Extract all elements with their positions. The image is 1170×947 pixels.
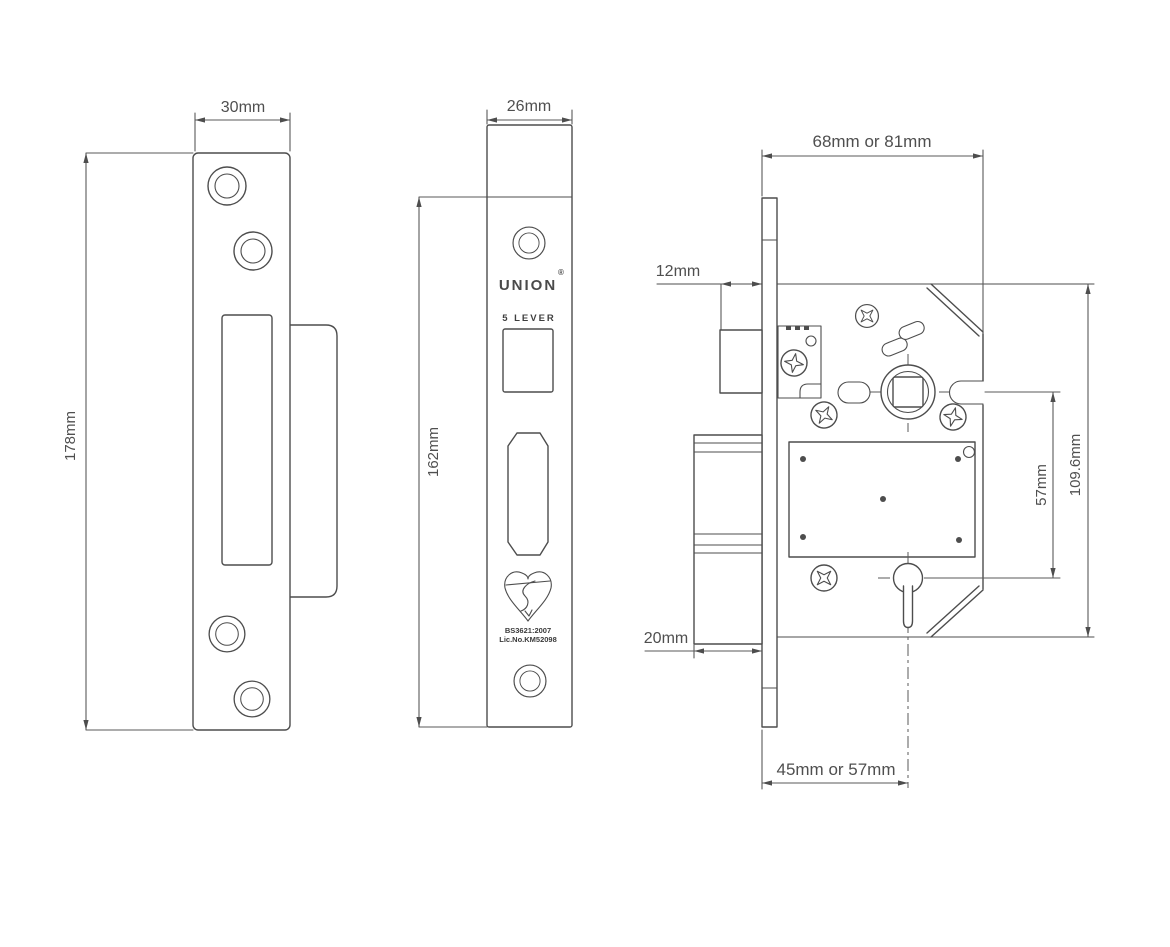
case-depth-label: 68mm or 81mm bbox=[812, 132, 931, 151]
lever-pack-cover bbox=[789, 442, 975, 557]
strike-plate-view: 30mm 178mm bbox=[62, 99, 337, 730]
latch-projection-label: 12mm bbox=[656, 263, 700, 280]
phillips-screw-icon bbox=[851, 300, 883, 332]
forend-width-label: 26mm bbox=[507, 98, 551, 115]
latch-projection-dimension: 12mm bbox=[656, 263, 762, 332]
keyhole bbox=[878, 552, 1060, 788]
oval-slot bbox=[838, 382, 870, 403]
edge-notch bbox=[950, 381, 984, 404]
licence-text: Lic.No.KM52098 bbox=[499, 635, 557, 644]
lock-case-view: 68mm or 81mm 12mm 20mm bbox=[644, 132, 1094, 789]
technical-drawing-page: 30mm 178mm 26mm bbox=[0, 0, 1170, 947]
forend-view: 26mm 162mm UNION ® 5 LEVER BS3621:2007 bbox=[416, 98, 572, 727]
phillips-screw-icon bbox=[937, 401, 969, 433]
latch-mechanism bbox=[778, 326, 821, 398]
top-chamfer bbox=[927, 284, 983, 336]
case-height-label: 109.6mm bbox=[1067, 434, 1084, 497]
latch-bolt bbox=[720, 330, 762, 393]
lever-count-text: 5 LEVER bbox=[502, 313, 556, 324]
lock-technical-drawing: 30mm 178mm 26mm bbox=[0, 0, 1170, 947]
bolt-projection-label: 20mm bbox=[644, 630, 688, 647]
brand-logo-text: UNION bbox=[499, 277, 557, 294]
strike-width-label: 30mm bbox=[221, 99, 265, 116]
standard-text: BS3621:2007 bbox=[505, 626, 551, 635]
centres-label: 57mm bbox=[1033, 464, 1050, 506]
phillips-screw-icon bbox=[806, 397, 842, 433]
keep-box bbox=[290, 325, 337, 597]
phillips-screw-icon bbox=[779, 348, 809, 378]
phillips-screw-icon bbox=[806, 560, 843, 597]
strike-width-dimension: 30mm bbox=[195, 99, 290, 151]
forend-height-label: 162mm bbox=[425, 427, 442, 477]
case-depth-dimension: 68mm or 81mm bbox=[762, 132, 983, 381]
backset-label: 45mm or 57mm bbox=[776, 760, 895, 779]
forend-width-dimension: 26mm bbox=[487, 98, 572, 124]
case-height-dimension: 109.6mm bbox=[1067, 284, 1091, 637]
bottom-chamfer bbox=[927, 586, 983, 637]
strike-height-dimension: 178mm bbox=[62, 153, 193, 730]
backset-dimension: 45mm or 57mm bbox=[762, 730, 908, 789]
strike-height-label: 178mm bbox=[62, 411, 79, 461]
curtain-slot bbox=[877, 320, 930, 358]
deadbolt bbox=[694, 435, 762, 644]
registered-mark: ® bbox=[558, 268, 564, 277]
forend-edge bbox=[762, 198, 777, 727]
